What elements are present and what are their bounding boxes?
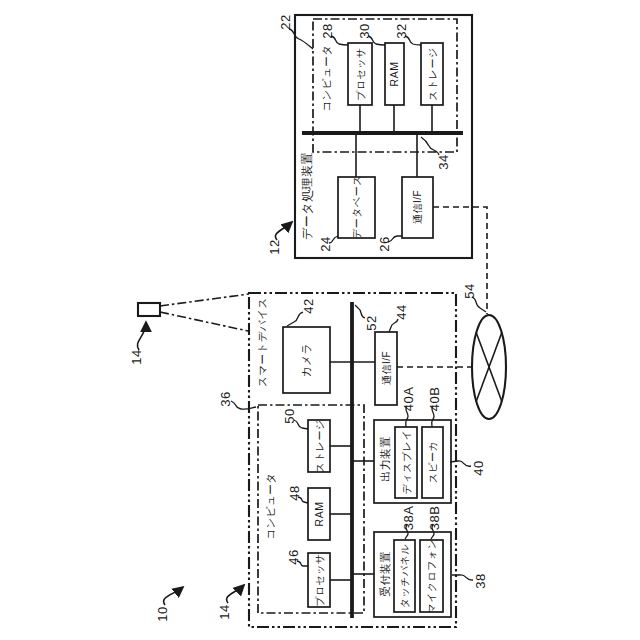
dpd-computer-label: コンピュータ: [320, 44, 332, 111]
arrow-14: [227, 585, 244, 603]
ref-46: 46: [286, 549, 301, 564]
network-link-dpd: [433, 207, 487, 314]
sd-storage-label: ストレージ: [314, 419, 325, 472]
sd-ram-label: RAM: [313, 502, 325, 527]
ref-40B: 40B: [427, 387, 442, 412]
ref-22: 22: [278, 14, 293, 29]
camera-label: カメラ: [300, 342, 312, 377]
leader-36: [231, 401, 256, 409]
ref-38A: 38A: [401, 506, 416, 531]
data-processing-device-title: データ処理装置: [300, 152, 314, 240]
dpd-processor-label: プロセッサ: [355, 47, 366, 101]
microphone-label: マイクロフォン: [426, 538, 437, 613]
ref-54: 54: [462, 283, 477, 298]
ref-26: 26: [377, 236, 392, 251]
ref-38: 38: [473, 573, 488, 588]
arrow-12: [275, 222, 292, 240]
leader-22: [289, 29, 313, 49]
patent-figure: データ処理装置 コンピュータ プロセッサ RAM ストレージ データベース 通信…: [0, 0, 640, 640]
sd-comm-if-label: 通信I/F: [381, 351, 392, 385]
ref-36: 36: [218, 391, 233, 406]
ref-44: 44: [394, 304, 409, 319]
leader-54: [472, 297, 486, 312]
ref-10: 10: [155, 606, 170, 621]
projection-line: [160, 312, 248, 331]
dpd-storage-label: ストレージ: [427, 47, 438, 100]
ref-40A: 40A: [401, 387, 416, 412]
display-label: ディスプレイ: [401, 430, 412, 494]
leader-32: [405, 36, 421, 45]
leader-40: [450, 461, 471, 466]
ref-52: 52: [364, 315, 379, 330]
leader-44: [389, 319, 398, 332]
reception-device-label: 受付装置: [379, 551, 391, 597]
ref-38B: 38B: [427, 506, 442, 531]
ref-50: 50: [282, 408, 297, 423]
sd-computer-label: コンピュータ: [264, 472, 276, 539]
dpd-ram-label: RAM: [388, 62, 400, 87]
dpd-comm-if-label: 通信I/F: [412, 190, 423, 224]
data-processing-device-group: データ処理装置 コンピュータ プロセッサ RAM ストレージ データベース 通信…: [267, 14, 473, 258]
speaker-label: スピーカ: [427, 441, 438, 484]
touch-panel-label: タッチパネル: [399, 544, 410, 609]
sd-processor-label: プロセッサ: [314, 553, 325, 607]
leader-28: [331, 36, 348, 45]
ref-14: 14: [217, 604, 232, 619]
arrow-14-miniature: [137, 322, 146, 350]
block-diagram-canvas: データ処理装置 コンピュータ プロセッサ RAM ストレージ データベース 通信…: [0, 0, 640, 640]
ref-24: 24: [318, 236, 333, 251]
smart-device-miniature: [138, 303, 160, 316]
ref-48: 48: [287, 485, 302, 500]
ref-14-miniature: 14: [129, 349, 144, 364]
ref-12: 12: [267, 239, 282, 254]
dpd-database-label: データベース: [351, 175, 362, 239]
ref-40: 40: [471, 460, 486, 475]
ref-34: 34: [436, 154, 451, 169]
projection-line: [160, 294, 249, 306]
smart-device-group: スマートデバイス 14 カメラ 42 52 通信I/F 44 コンピュータ 36…: [129, 293, 488, 627]
smart-device-title: スマートデバイス: [256, 297, 268, 387]
output-device-label: 出力装置: [379, 436, 391, 482]
arrow-10: [164, 587, 183, 605]
